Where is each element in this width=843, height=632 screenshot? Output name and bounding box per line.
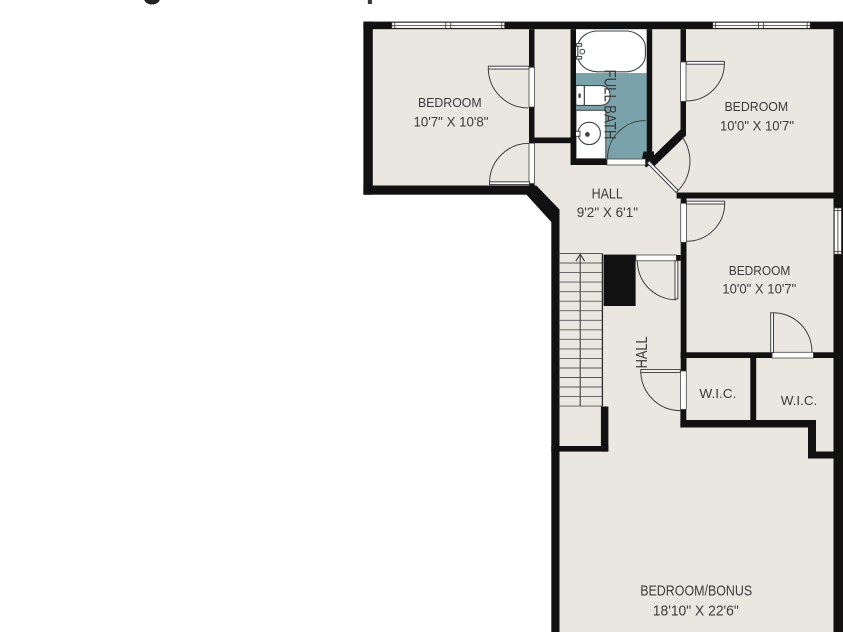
svg-text:W.I.C.: W.I.C. (699, 386, 736, 401)
svg-text:10'0" X 10'7": 10'0" X 10'7" (720, 118, 794, 133)
svg-text:9'2" X 6'1": 9'2" X 6'1" (577, 204, 638, 220)
svg-text:18'10" X 22'6": 18'10" X 22'6" (653, 604, 739, 620)
svg-text:BEDROOM/BONUS: BEDROOM/BONUS (640, 584, 752, 600)
svg-text:p: p (366, 0, 384, 5)
svg-text:FULL BATH: FULL BATH (601, 70, 620, 140)
svg-text:10'0" X 10'7": 10'0" X 10'7" (722, 282, 796, 297)
svg-text:HALL: HALL (634, 336, 651, 368)
svg-text:HALL: HALL (592, 186, 623, 203)
svg-text:10'7" X 10'8": 10'7" X 10'8" (414, 114, 489, 129)
svg-text:BEDROOM: BEDROOM (729, 263, 791, 278)
svg-text:BEDROOM: BEDROOM (724, 99, 788, 114)
svg-text:BEDROOM: BEDROOM (418, 95, 482, 110)
svg-text:W.I.C.: W.I.C. (781, 393, 818, 408)
